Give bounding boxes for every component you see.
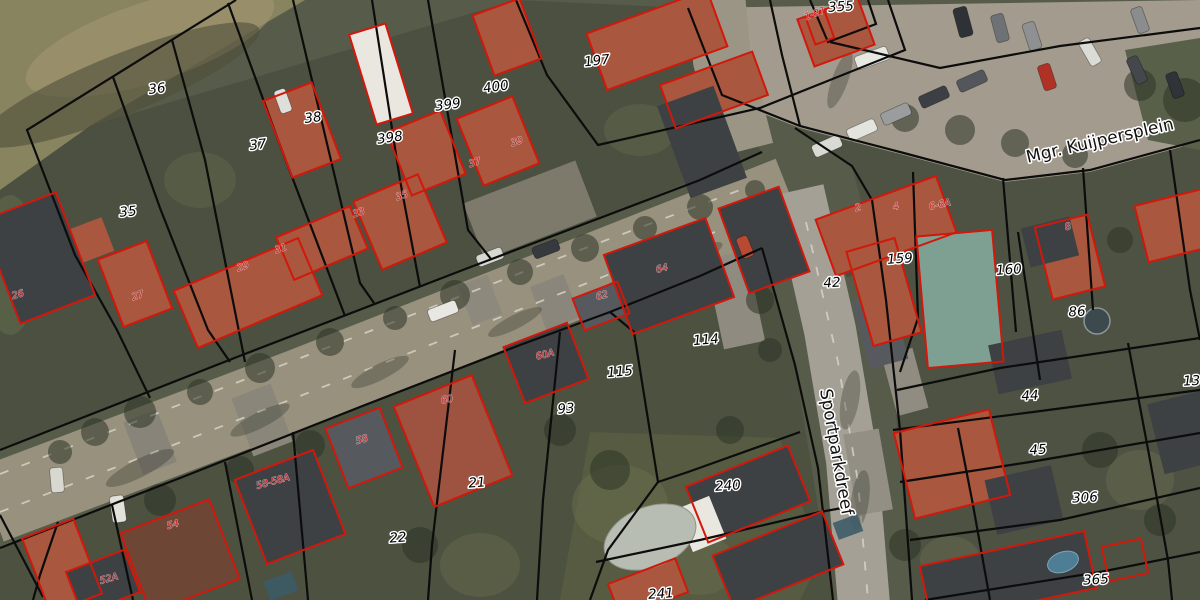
tree-canopy [590, 450, 630, 490]
tree-canopy [187, 379, 213, 405]
tree-canopy [383, 306, 407, 330]
tree-canopy [81, 418, 109, 446]
parcel-label-38: 38 [303, 109, 322, 127]
parcel-label-45: 45 [1029, 442, 1047, 459]
tree-canopy [1107, 227, 1133, 253]
parcel-label-22: 22 [389, 529, 407, 546]
pool [1084, 308, 1110, 334]
tree-canopy [124, 396, 156, 428]
parcel-label-355: 355 [828, 0, 855, 16]
parcel-label-114: 114 [692, 331, 719, 349]
tree-canopy [144, 484, 176, 516]
map-viewport[interactable]: 26272931333537391-9752A5458-58A586060A62… [0, 0, 1200, 600]
tree-canopy [945, 115, 975, 145]
parcel-label-35: 35 [119, 203, 138, 220]
parcel-label-93: 93 [557, 400, 575, 417]
parcel-label-44: 44 [1021, 388, 1039, 405]
parcel-label-115: 115 [606, 363, 633, 381]
tree-canopy [716, 416, 744, 444]
tree-canopy [507, 259, 533, 285]
parcel-label-240: 240 [715, 477, 742, 495]
parcel-label-36: 36 [147, 80, 166, 98]
parcel-label-37: 37 [248, 136, 267, 154]
parcel-label-139: 139 [1183, 372, 1200, 389]
parcel-label-365: 365 [1083, 571, 1110, 588]
parked-car [49, 467, 64, 493]
tree-canopy [571, 234, 599, 262]
parcel-label-86: 86 [1068, 304, 1086, 321]
tree-canopy [889, 529, 921, 561]
tree-canopy [758, 338, 782, 362]
tree-canopy [245, 353, 275, 383]
parcel-label-159: 159 [887, 250, 914, 268]
tree-canopy [48, 440, 72, 464]
parcel-label-21: 21 [468, 474, 486, 491]
parcel-label-306: 306 [1072, 489, 1099, 506]
grass-patch [164, 152, 236, 208]
parcel-label-197: 197 [583, 52, 611, 71]
tree-canopy [316, 328, 344, 356]
aerial-map-canvas[interactable]: 26272931333537391-9752A5458-58A586060A62… [0, 0, 1200, 600]
parcel-label-42: 42 [823, 275, 841, 292]
grass-patch [440, 533, 520, 597]
parcel-label-241: 241 [648, 585, 675, 600]
parcel-label-160: 160 [996, 261, 1023, 279]
